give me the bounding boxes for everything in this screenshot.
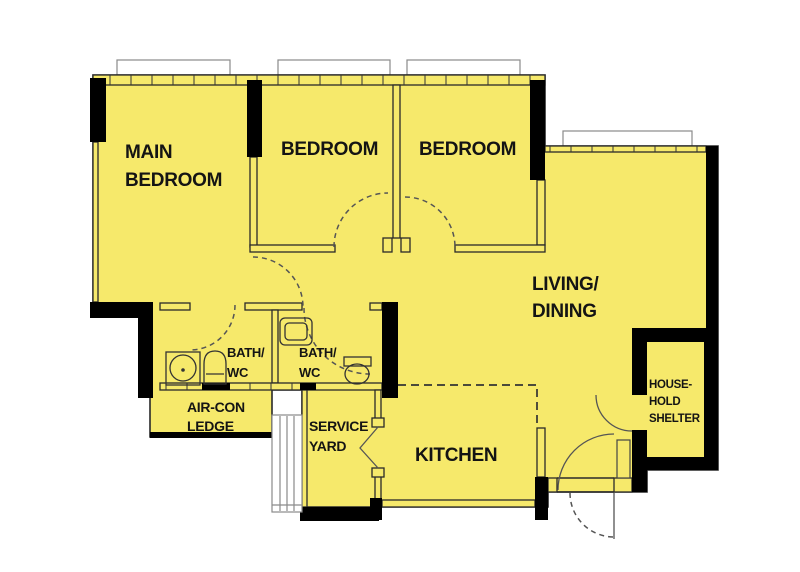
label-main-bedroom-line2: BEDROOM [125, 170, 222, 191]
floor-plan-page: MAIN BEDROOM BEDROOM BEDROOM LIVING/ DIN… [0, 0, 800, 572]
window-bedroom-2 [278, 60, 390, 75]
wall-black-shelter-bottom [632, 457, 717, 470]
wall-black-kitchen-br [535, 477, 548, 520]
gate-swing [570, 493, 614, 537]
wall-black-living-right [706, 146, 718, 342]
wall-mainbed-bed2 [250, 157, 257, 247]
wall-bed3-living [537, 180, 545, 245]
wall-kitchen-right [537, 428, 545, 477]
label-bath2-line1: BATH/ [299, 345, 337, 360]
window-bedroom-3 [407, 60, 520, 75]
wall-hall-north-1 [250, 245, 335, 252]
label-shelter-line2: HOLD [649, 396, 680, 408]
wall-black-shelter-left-up [632, 342, 647, 395]
wall-black-L-vertical [138, 302, 153, 398]
label-aircon-line1: AIR-CON [187, 399, 245, 415]
door-frame-yard-top [372, 418, 384, 427]
entrance-door-leaf [617, 440, 630, 478]
wall-kitchen-bottom [382, 500, 535, 507]
door-frame-yard-bottom [372, 468, 384, 477]
label-kitchen: KITCHEN [415, 445, 497, 466]
label-shelter-line1: HOUSE- [649, 379, 692, 391]
wall-black-bath2-right [382, 302, 398, 398]
wall-top-band-living [545, 146, 706, 152]
label-living-line2: DINING [532, 301, 597, 322]
wall-black-topleft [90, 78, 106, 142]
label-main-bedroom-line1: MAIN [125, 142, 172, 163]
label-bedroom-3: BEDROOM [419, 139, 516, 160]
window-living [563, 131, 692, 146]
wall-entry-left [548, 478, 557, 492]
label-bath1-line2: WC [227, 365, 249, 380]
label-shelter-line3: SHELTER [649, 413, 701, 425]
wall-hall-north-2 [455, 245, 545, 252]
wall-bath1-top-right [245, 303, 302, 310]
wall-bath2-top-right [370, 303, 382, 310]
wall-bed2-bed3 [393, 85, 400, 238]
wall-top-band-bedrooms [93, 75, 545, 85]
label-bath2-line2: WC [299, 365, 321, 380]
wall-black-kitchen-bl [370, 498, 382, 520]
floor-plan-svg: MAIN BEDROOM BEDROOM BEDROOM LIVING/ DIN… [0, 0, 800, 572]
label-bath1-line1: BATH/ [227, 345, 265, 360]
ticks-bedroom-band [110, 75, 530, 85]
label-aircon-line2: LEDGE [187, 418, 234, 434]
wall-service-yard-left [302, 390, 307, 507]
wall-bath1-top-left [160, 303, 190, 310]
wall-entry-right [614, 478, 632, 492]
label-bedroom-2: BEDROOM [281, 139, 378, 160]
basin-drain-icon [181, 368, 185, 372]
wall-black-bed3-living [530, 80, 545, 180]
label-living-line1: LIVING/ [532, 274, 600, 295]
window-main-bedroom [117, 60, 230, 75]
aircon-grille [272, 415, 302, 512]
wall-black-yard-bottom [300, 507, 379, 521]
wall-black-mainbed-bed2 [247, 80, 262, 157]
label-yard-line2: YARD [309, 438, 346, 454]
wall-black-shelter-right [704, 342, 718, 470]
wall-black-bath2-sill [300, 383, 316, 390]
label-yard-line1: SERVICE [309, 418, 368, 434]
door-frame-bed3 [401, 238, 410, 252]
wall-bath-divider [272, 310, 278, 383]
wall-left-exterior [93, 142, 98, 302]
wall-black-shelter-top [632, 328, 718, 342]
door-frame-bed2 [383, 238, 392, 252]
